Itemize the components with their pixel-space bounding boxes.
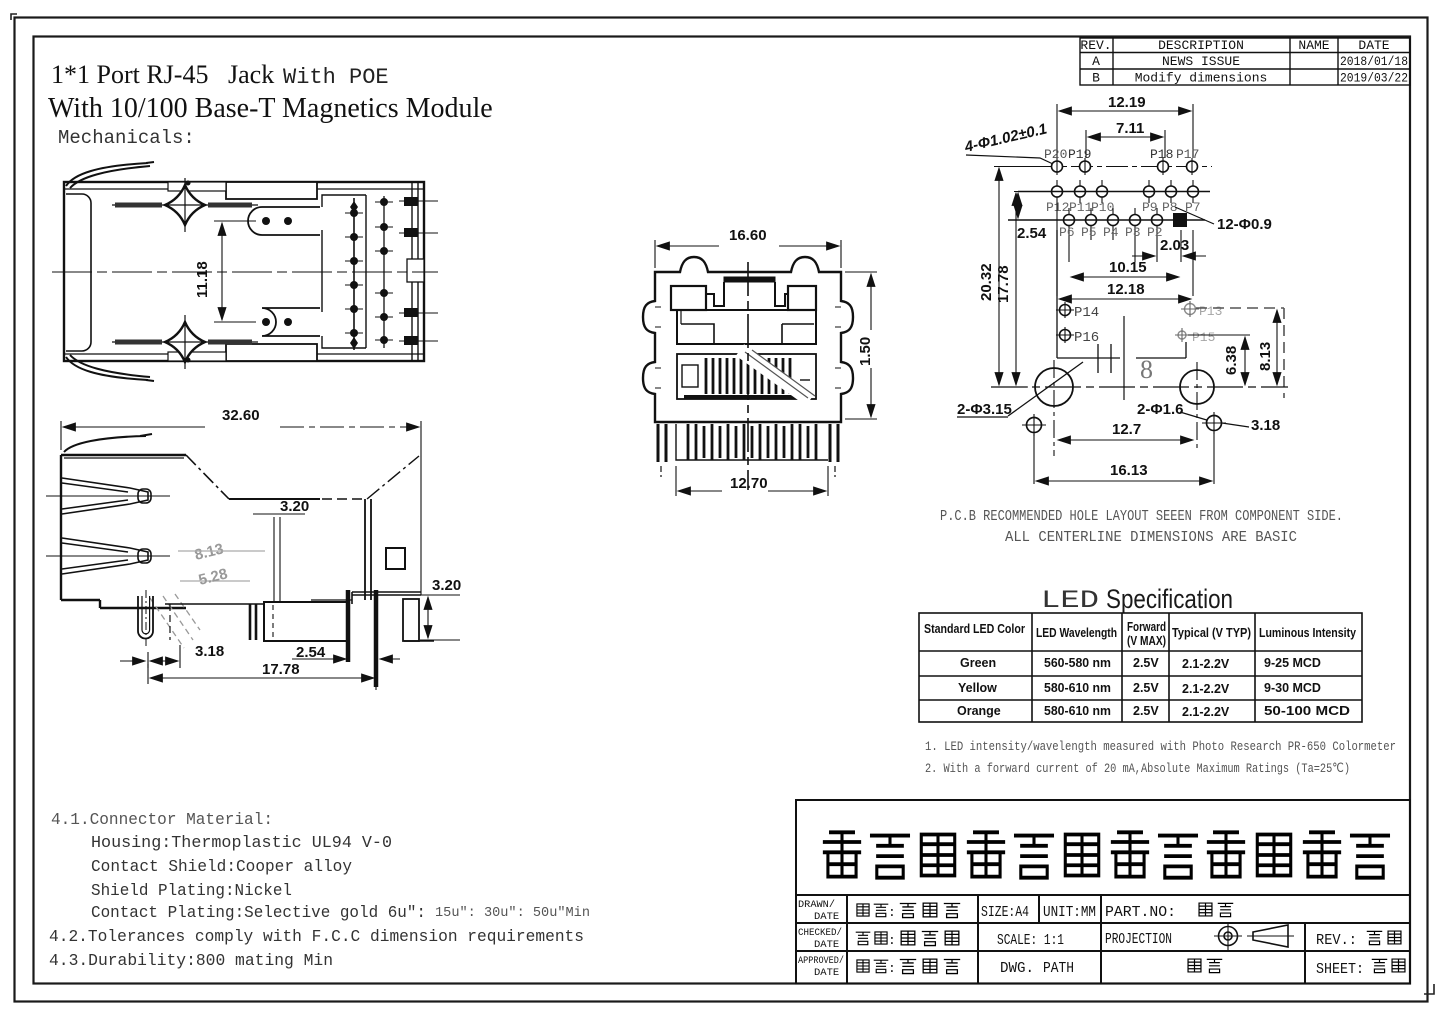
svg-text:2.54: 2.54 [1017, 225, 1047, 242]
svg-text:Specification: Specification [1106, 584, 1233, 614]
svg-text:DWG.: DWG. [1000, 960, 1034, 977]
svg-text:4.1.Connector Material:: 4.1.Connector Material: [51, 811, 273, 830]
svg-text:4.2.Tolerances comply with F.C: 4.2.Tolerances comply with F.C.C dimensi… [49, 928, 584, 947]
svg-text:2.1-2.2V: 2.1-2.2V [1182, 705, 1230, 719]
svg-text:Contact Plating:Selective gold: Contact Plating:Selective gold 6u″: [91, 904, 426, 923]
svg-text:1. LED intensity/wavelength me: 1. LED intensity/wavelength measured wit… [925, 739, 1396, 754]
svg-text:DATE: DATE [1358, 38, 1389, 53]
svg-text:B: B [1092, 71, 1100, 86]
svg-text:1.50: 1.50 [857, 337, 874, 366]
svg-text:NEWS ISSUE: NEWS ISSUE [1162, 54, 1240, 69]
svg-text:DATE: DATE [814, 911, 839, 923]
svg-text:16.60: 16.60 [729, 227, 767, 244]
svg-text:Yellow: Yellow [958, 681, 997, 695]
svg-text:DRAWN/: DRAWN/ [798, 899, 835, 911]
svg-text:2.5V: 2.5V [1133, 704, 1159, 718]
svg-text:9-25 MCD: 9-25 MCD [1264, 656, 1321, 670]
svg-text:PATH: PATH [1043, 960, 1074, 977]
svg-text:4.3.Durability:800 mating Min: 4.3.Durability:800 mating Min [49, 952, 333, 971]
svg-text:CHECKED/: CHECKED/ [798, 927, 842, 939]
svg-text:Luminous Intensity: Luminous Intensity [1259, 626, 1356, 640]
svg-text:P19: P19 [1068, 147, 1091, 162]
svg-text:Orange: Orange [957, 704, 1001, 718]
svg-text:P11: P11 [1069, 200, 1093, 215]
svg-text:11.18: 11.18 [194, 261, 211, 298]
svg-text:Typical (V TYP): Typical (V TYP) [1172, 626, 1251, 640]
svg-text:3.18: 3.18 [195, 643, 224, 660]
svg-text:P17: P17 [1176, 147, 1199, 162]
svg-text:P15: P15 [1192, 330, 1215, 345]
svg-text:2.5V: 2.5V [1133, 656, 1159, 670]
svg-text:PART.NO:: PART.NO: [1105, 904, 1176, 921]
svg-text:7.11: 7.11 [1116, 120, 1144, 137]
svg-text:Green: Green [960, 656, 996, 670]
svg-text:3.18: 3.18 [1251, 417, 1280, 434]
svg-text:P14: P14 [1074, 305, 1099, 321]
svg-text:NAME: NAME [1298, 38, 1329, 53]
svg-text:P6: P6 [1059, 225, 1075, 240]
svg-text:16.13: 16.13 [1110, 462, 1148, 479]
svg-text:12.19: 12.19 [1108, 94, 1146, 111]
svg-text:3.20: 3.20 [280, 498, 309, 515]
svg-text:REV.:: REV.: [1316, 932, 1357, 949]
svg-text:8.13: 8.13 [193, 540, 225, 564]
svg-text:ALL CENTERLINE DIMENSIONS ARE: ALL CENTERLINE DIMENSIONS ARE BASIC [1005, 529, 1297, 546]
svg-text:Modify dimensions: Modify dimensions [1135, 71, 1268, 86]
svg-text:12.70: 12.70 [730, 475, 768, 492]
svg-text:2.1-2.2V: 2.1-2.2V [1182, 682, 1230, 696]
svg-text:3.20: 3.20 [432, 577, 461, 594]
svg-text:Contact Shield:Cooper alloy: Contact Shield:Cooper alloy [91, 858, 352, 877]
svg-text:Forward: Forward [1127, 620, 1166, 634]
svg-text:P10: P10 [1091, 200, 1114, 215]
svg-text:4-Φ1.02±0.1: 4-Φ1.02±0.1 [962, 120, 1049, 156]
svg-text:17.78: 17.78 [262, 661, 300, 678]
svg-text:560-580 nm: 560-580 nm [1044, 656, 1111, 670]
svg-text:A: A [1092, 54, 1100, 69]
svg-text:5.28: 5.28 [197, 565, 229, 589]
svg-text:With 10/100 Base-T Magnetics M: With 10/100 Base-T Magnetics Module [48, 93, 493, 124]
svg-text:2.03: 2.03 [1160, 237, 1189, 254]
svg-text:10.15: 10.15 [1109, 259, 1147, 276]
svg-text:32.60: 32.60 [222, 407, 260, 424]
svg-text:2. With a forward current of 2: 2. With a forward current of 20 mA,Absol… [925, 761, 1350, 776]
svg-text:Mechanicals:: Mechanicals: [58, 127, 195, 149]
svg-text:UNIT:MM: UNIT:MM [1043, 904, 1096, 921]
svg-text:P20: P20 [1044, 147, 1067, 162]
svg-text:2019/03/22: 2019/03/22 [1340, 71, 1408, 86]
svg-text:580-610 nm: 580-610 nm [1044, 681, 1111, 695]
svg-text:LED: LED [1041, 586, 1099, 615]
svg-text:DATE: DATE [814, 967, 839, 979]
svg-text:Shield Plating:Nickel: Shield Plating:Nickel [91, 882, 292, 901]
svg-text:P13: P13 [1199, 304, 1222, 319]
svg-text:8.13: 8.13 [1257, 342, 1274, 371]
svg-text:12-Φ0.9: 12-Φ0.9 [1217, 216, 1272, 233]
svg-text:DATE: DATE [814, 939, 839, 951]
svg-text:12.7: 12.7 [1112, 421, 1141, 438]
svg-text:2.5V: 2.5V [1133, 681, 1159, 695]
svg-text:P.C.B RECOMMENDED HOLE LAYOUT: P.C.B RECOMMENDED HOLE LAYOUT SEEEN FROM… [940, 508, 1343, 525]
svg-text:P3: P3 [1125, 225, 1141, 240]
svg-text:2.1-2.2V: 2.1-2.2V [1182, 657, 1230, 671]
svg-text:P18: P18 [1150, 147, 1173, 162]
svg-text:Housing:Thermoplastic UL94 V-0: Housing:Thermoplastic UL94 V-0 [91, 834, 392, 853]
svg-text:P4: P4 [1103, 225, 1119, 240]
svg-text:P9: P9 [1142, 200, 1158, 215]
svg-text:6.38: 6.38 [1223, 346, 1240, 375]
svg-text:SHEET:: SHEET: [1316, 961, 1364, 978]
svg-text:2018/01/18: 2018/01/18 [1340, 54, 1408, 69]
svg-text:17.78: 17.78 [995, 265, 1012, 303]
svg-text:P5: P5 [1081, 225, 1097, 240]
svg-text:2-Φ3.15: 2-Φ3.15 [957, 401, 1012, 418]
svg-text:APPROVED/: APPROVED/ [798, 955, 844, 967]
svg-text:20.32: 20.32 [978, 263, 995, 301]
svg-text:PROJECTION: PROJECTION [1105, 931, 1172, 948]
svg-text:P12: P12 [1046, 200, 1069, 215]
svg-text:8: 8 [1140, 355, 1153, 384]
svg-text:9-30 MCD: 9-30 MCD [1264, 681, 1321, 695]
svg-text:Standard LED Color: Standard LED Color [924, 622, 1025, 636]
svg-text:DESCRIPTION: DESCRIPTION [1158, 38, 1244, 53]
svg-text::: : [888, 933, 896, 948]
svg-text:P16: P16 [1074, 330, 1099, 346]
svg-text:(V MAX): (V MAX) [1127, 634, 1166, 648]
svg-text:50-100 MCD: 50-100 MCD [1264, 704, 1350, 718]
svg-text::: : [888, 961, 896, 976]
svg-text:SCALE: 1:1: SCALE: 1:1 [997, 932, 1064, 949]
svg-text:REV.: REV. [1080, 38, 1111, 53]
svg-text:1*1 Port RJ-45Jack With POE: 1*1 Port RJ-45Jack With POE [51, 60, 389, 90]
svg-text:SIZE:A4: SIZE:A4 [981, 904, 1029, 921]
svg-text:12.18: 12.18 [1107, 281, 1145, 298]
svg-text::: : [888, 905, 896, 920]
svg-text:2-Φ1.6: 2-Φ1.6 [1137, 401, 1184, 418]
svg-text:LED Wavelength: LED Wavelength [1036, 626, 1117, 640]
svg-text:15u″: 30u″: 50u″Min: 15u″: 30u″: 50u″Min [435, 905, 590, 921]
svg-text:580-610 nm: 580-610 nm [1044, 704, 1111, 718]
